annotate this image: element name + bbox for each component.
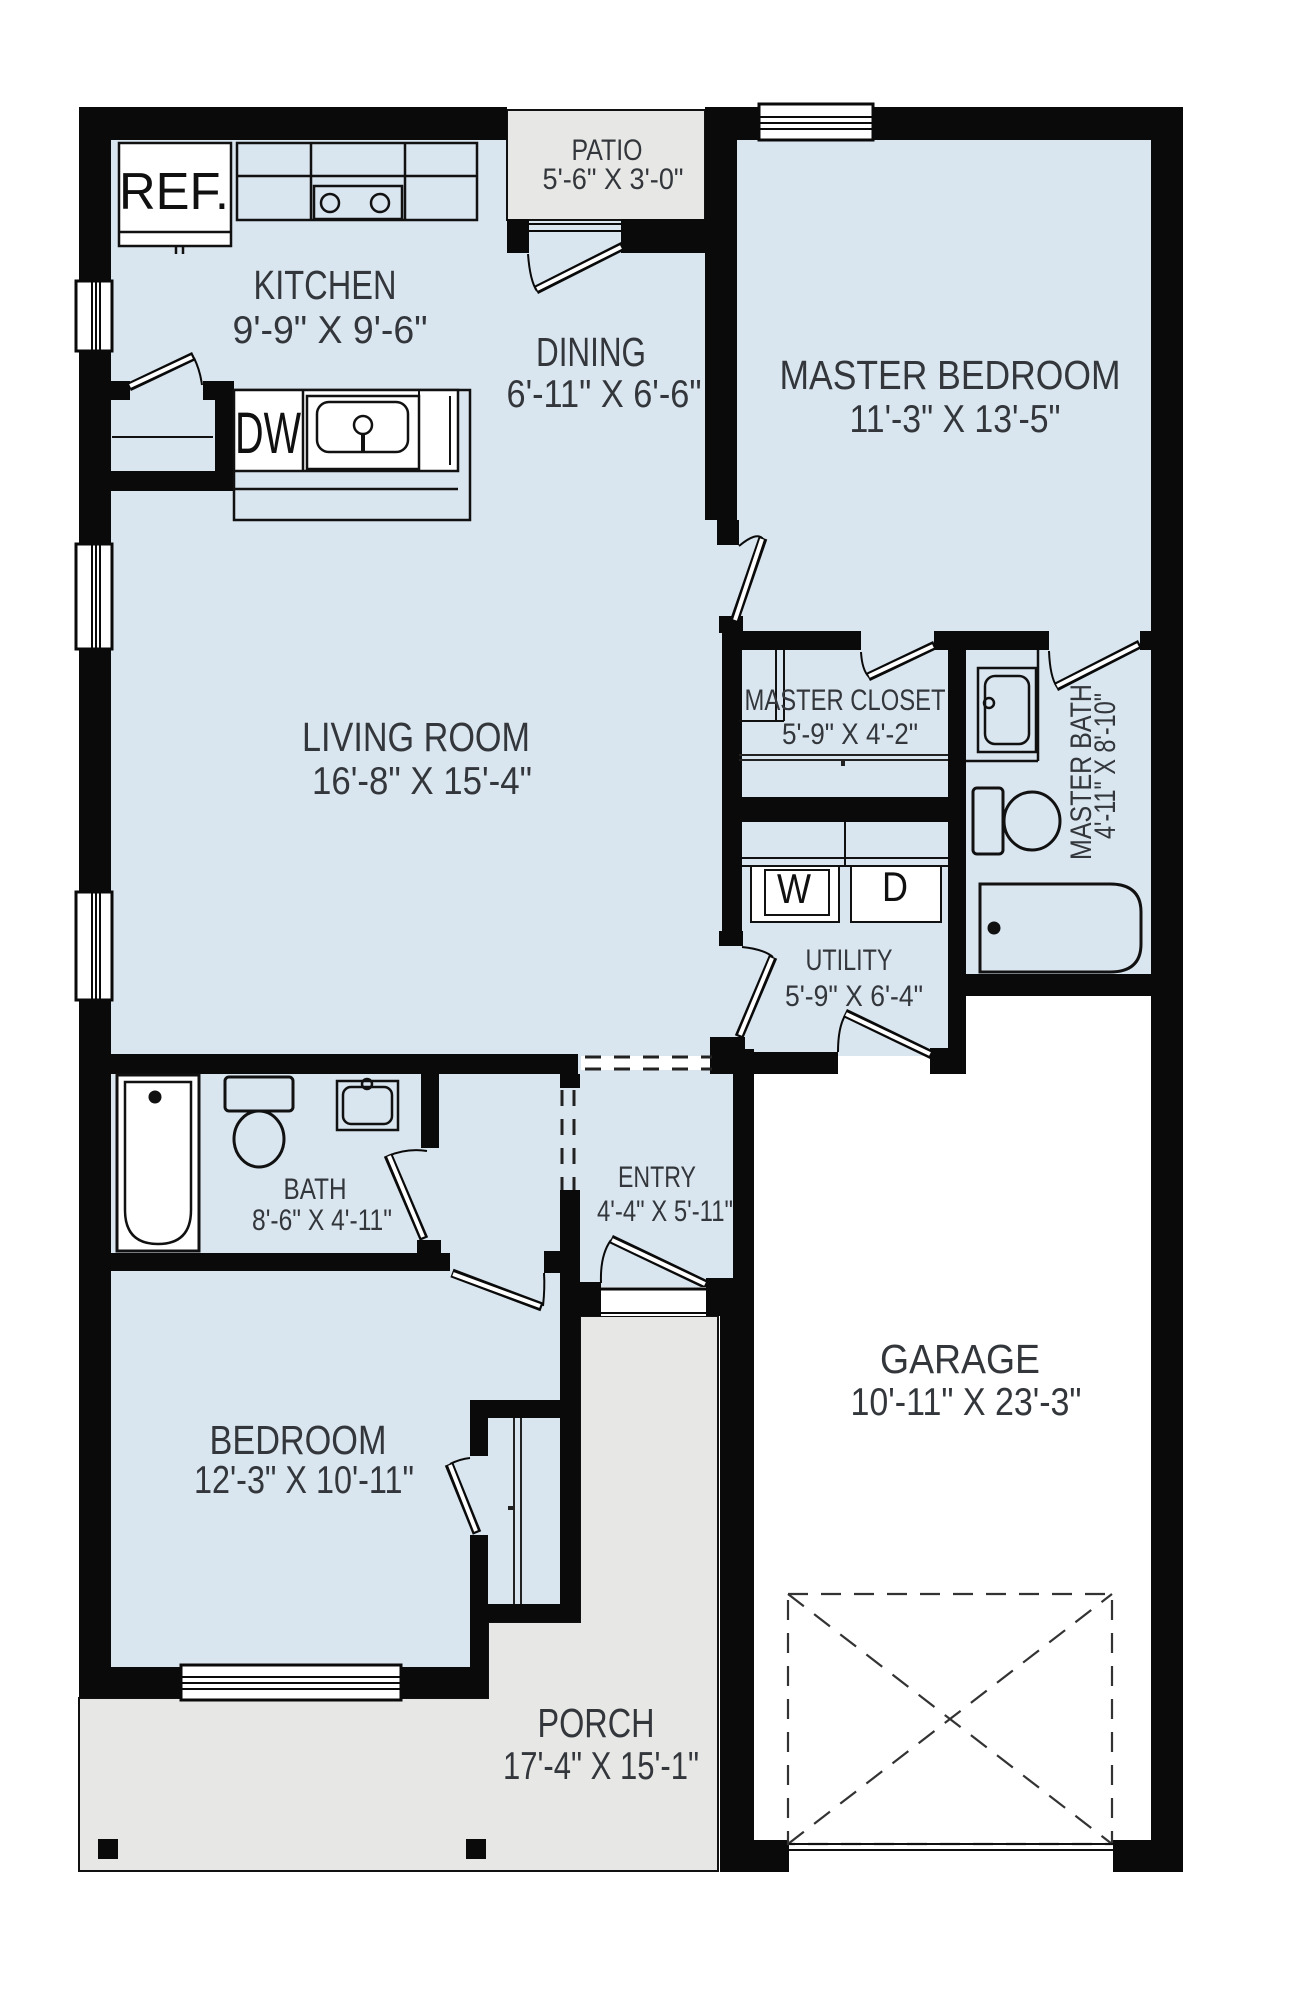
svg-text:12'-3" X 10'-11": 12'-3" X 10'-11" — [194, 1459, 414, 1502]
svg-text:ENTRY: ENTRY — [618, 1161, 696, 1194]
svg-text:DW: DW — [235, 401, 301, 466]
svg-text:PORCH: PORCH — [538, 1700, 655, 1746]
svg-text:5'-9" X 4'-2": 5'-9" X 4'-2" — [782, 718, 918, 751]
svg-text:10'-11" X 23'-3": 10'-11" X 23'-3" — [851, 1381, 1082, 1424]
svg-text:BEDROOM: BEDROOM — [210, 1417, 387, 1463]
svg-text:W: W — [777, 865, 811, 912]
svg-text:4'-4" X 5'-11": 4'-4" X 5'-11" — [597, 1195, 733, 1228]
svg-text:GARAGE: GARAGE — [880, 1336, 1040, 1382]
svg-text:9'-9" X 9'-6": 9'-9" X 9'-6" — [233, 309, 428, 352]
svg-text:MASTER CLOSET: MASTER CLOSET — [745, 684, 946, 717]
svg-text:MASTER BEDROOM: MASTER BEDROOM — [780, 352, 1121, 398]
svg-text:16'-8" X 15'-4": 16'-8" X 15'-4" — [312, 760, 532, 803]
svg-text:UTILITY: UTILITY — [806, 944, 893, 977]
svg-text:D: D — [882, 863, 908, 910]
svg-text:6'-11" X 6'-6": 6'-11" X 6'-6" — [507, 373, 702, 416]
svg-text:4'-11" X 8'-10": 4'-11" X 8'-10" — [1089, 693, 1122, 839]
svg-text:11'-3" X 13'-5": 11'-3" X 13'-5" — [850, 398, 1061, 441]
svg-text:5'-6" X 3'-0": 5'-6" X 3'-0" — [543, 163, 684, 196]
svg-text:17'-4" X 15'-1": 17'-4" X 15'-1" — [503, 1745, 699, 1788]
svg-text:LIVING ROOM: LIVING ROOM — [302, 714, 530, 760]
svg-text:KITCHEN: KITCHEN — [254, 262, 397, 308]
svg-text:8'-6" X 4'-11": 8'-6" X 4'-11" — [252, 1204, 392, 1237]
svg-text:REF.: REF. — [119, 163, 229, 221]
svg-text:5'-9" X 6'-4": 5'-9" X 6'-4" — [785, 980, 923, 1013]
svg-text:BATH: BATH — [284, 1173, 347, 1206]
svg-text:DINING: DINING — [536, 329, 646, 375]
